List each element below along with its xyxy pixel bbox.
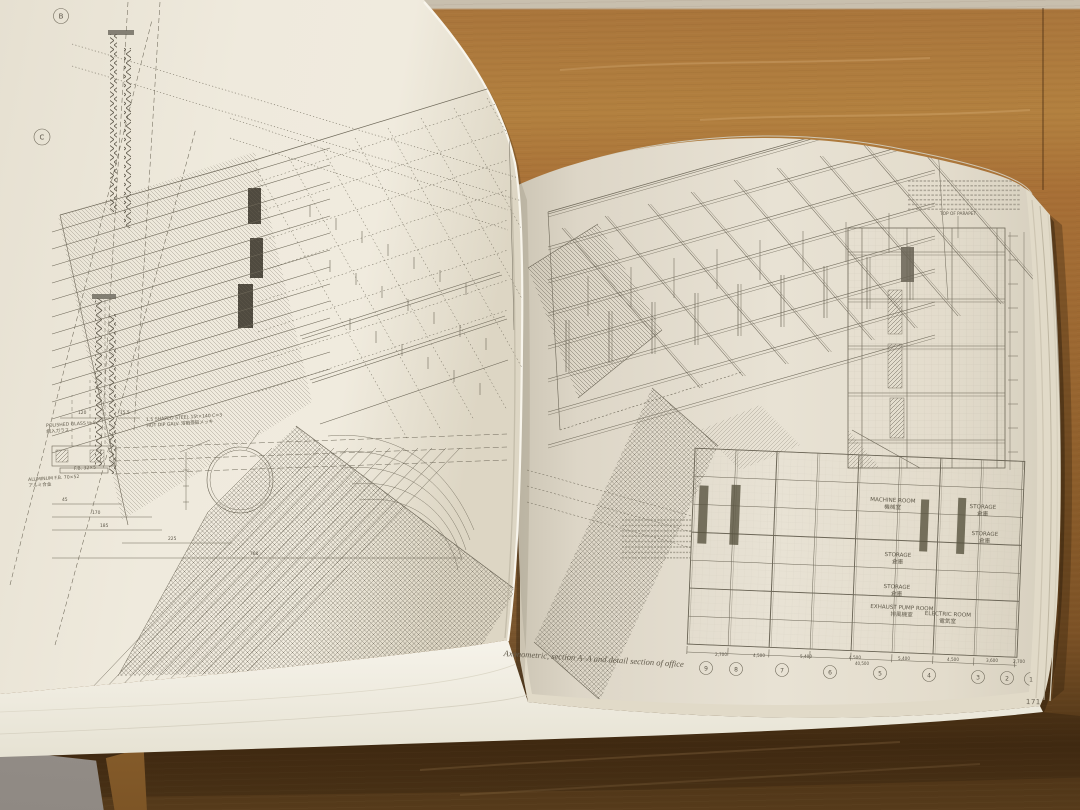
svg-text:6: 6: [828, 670, 832, 677]
svg-text:C: C: [40, 134, 45, 142]
svg-text:4,500: 4,500: [947, 657, 959, 662]
detail-floor-plan-drawing: [687, 448, 1025, 667]
svg-text:3: 3: [976, 675, 980, 682]
room-label-machine: MACHINE ROOM 機械室: [870, 497, 916, 512]
book-illustration: 9 8 7 6 5 4 3 2 1 2,700 4,500 5,400 4,50…: [0, 0, 1080, 810]
svg-text:170: 170: [92, 510, 101, 516]
svg-text:4,500: 4,500: [753, 653, 765, 658]
spec-notes-block: [908, 181, 1020, 209]
svg-text:15.5: 15.5: [120, 410, 130, 416]
parapet-label: TOP OF PARAPET: [939, 211, 976, 217]
svg-text:4: 4: [927, 673, 931, 680]
svg-text:185: 185: [100, 523, 109, 529]
svg-text:1: 1: [1029, 677, 1033, 684]
svg-text:8: 8: [734, 667, 738, 674]
svg-text:5: 5: [878, 671, 882, 678]
svg-text:7: 7: [780, 668, 784, 675]
detail-wall-section-drawing: [848, 216, 1024, 470]
svg-text:760: 760: [250, 551, 259, 557]
svg-text:120: 120: [78, 410, 87, 416]
room-label-electric: ELECTRIC ROOM 電気室: [924, 611, 971, 626]
svg-text:3,600: 3,600: [986, 658, 998, 663]
svg-text:45: 45: [62, 497, 68, 503]
room-label-storage-4: STORAGE 倉庫: [971, 531, 998, 545]
room-label-storage-3: STORAGE 倉庫: [969, 504, 996, 518]
svg-text:2,700: 2,700: [1013, 659, 1025, 664]
svg-text:5,400: 5,400: [800, 654, 812, 659]
svg-text:B: B: [59, 13, 64, 21]
svg-text:2,700: 2,700: [715, 652, 727, 657]
svg-text:5,400: 5,400: [898, 656, 910, 661]
page-number: 171: [1026, 698, 1041, 707]
svg-text:4,500: 4,500: [849, 655, 861, 660]
svg-text:40,500: 40,500: [855, 661, 869, 666]
room-label-storage-2: STORAGE 倉庫: [883, 584, 910, 598]
room-label-storage-1: STORAGE 倉庫: [884, 552, 911, 566]
svg-text:2: 2: [1005, 676, 1009, 683]
svg-text:225: 225: [168, 536, 177, 542]
photo-of-open-book: 9 8 7 6 5 4 3 2 1 2,700 4,500 5,400 4,50…: [0, 0, 1080, 810]
